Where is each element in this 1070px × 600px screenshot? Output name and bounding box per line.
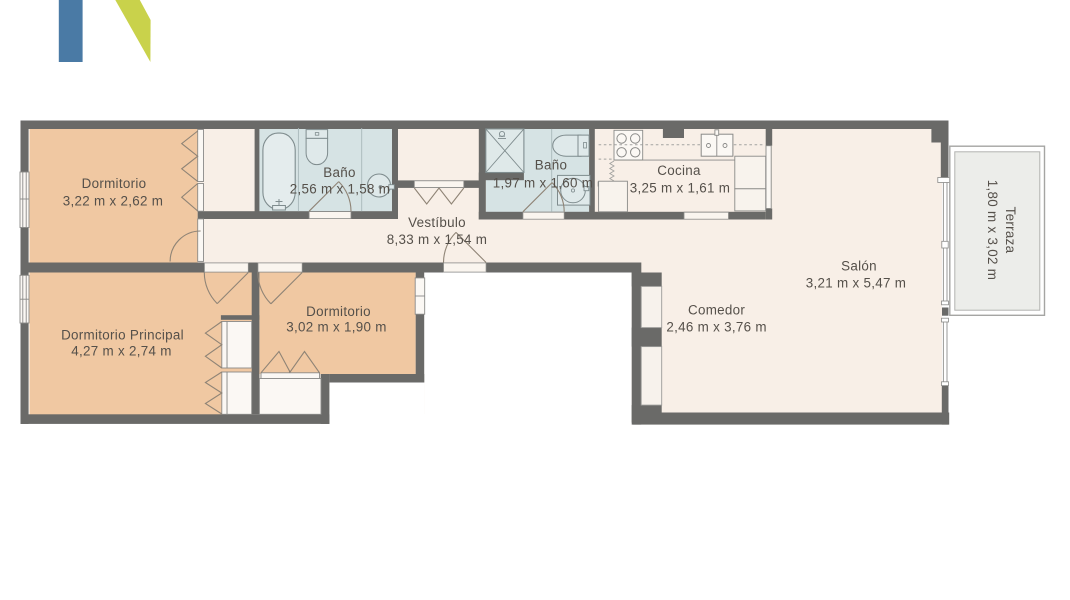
svg-text:8,33 m x 1,54 m: 8,33 m x 1,54 m [387, 232, 488, 247]
svg-text:2,46 m x 3,76 m: 2,46 m x 3,76 m [666, 320, 767, 335]
svg-text:Terraza: Terraza [1003, 207, 1018, 254]
svg-text:Dormitorio: Dormitorio [82, 176, 147, 191]
svg-text:4,27 m x 2,74 m: 4,27 m x 2,74 m [71, 344, 172, 359]
svg-text:3,02 m x 1,90 m: 3,02 m x 1,90 m [286, 320, 387, 335]
svg-text:Baño: Baño [535, 158, 567, 173]
svg-text:3,22 m x 2,62 m: 3,22 m x 2,62 m [63, 193, 164, 208]
svg-text:1,97 m x 1,60 m: 1,97 m x 1,60 m [493, 176, 594, 191]
svg-text:Dormitorio Principal: Dormitorio Principal [61, 328, 184, 343]
svg-text:3,25 m x 1,61 m: 3,25 m x 1,61 m [630, 181, 731, 196]
svg-text:1,80 m x 3,02 m: 1,80 m x 3,02 m [985, 180, 1000, 281]
svg-text:2,56 m x 1,58 m: 2,56 m x 1,58 m [290, 181, 391, 196]
svg-text:3,21 m x 5,47 m: 3,21 m x 5,47 m [806, 276, 907, 291]
svg-text:Cocina: Cocina [657, 163, 701, 178]
svg-text:Vestíbulo: Vestíbulo [408, 215, 466, 230]
svg-text:Comedor: Comedor [688, 303, 745, 318]
svg-text:Baño: Baño [323, 165, 355, 180]
svg-text:Dormitorio: Dormitorio [306, 304, 371, 319]
svg-text:Salón: Salón [841, 259, 877, 274]
